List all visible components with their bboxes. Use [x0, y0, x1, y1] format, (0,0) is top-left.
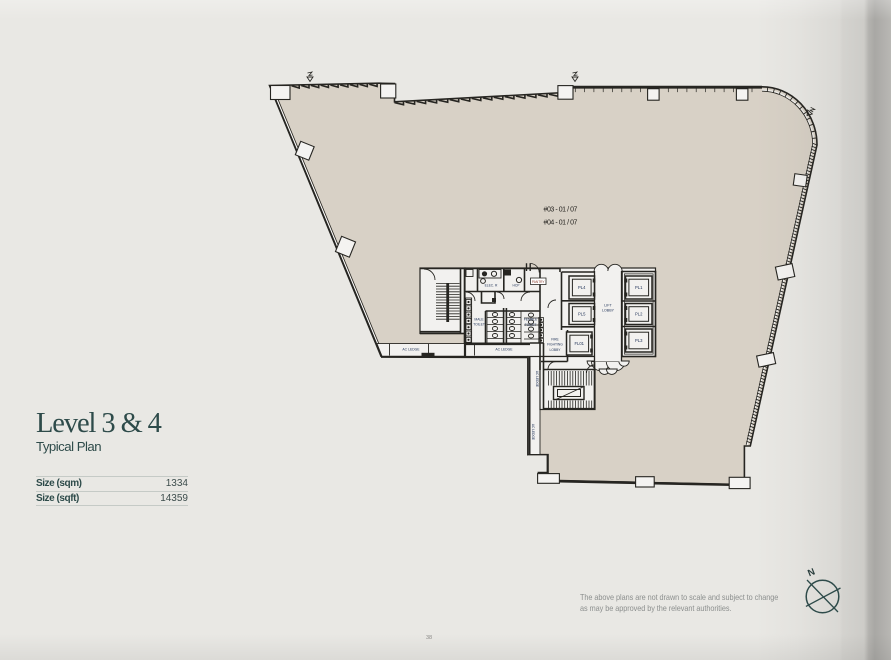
- svg-text:N: N: [806, 566, 817, 579]
